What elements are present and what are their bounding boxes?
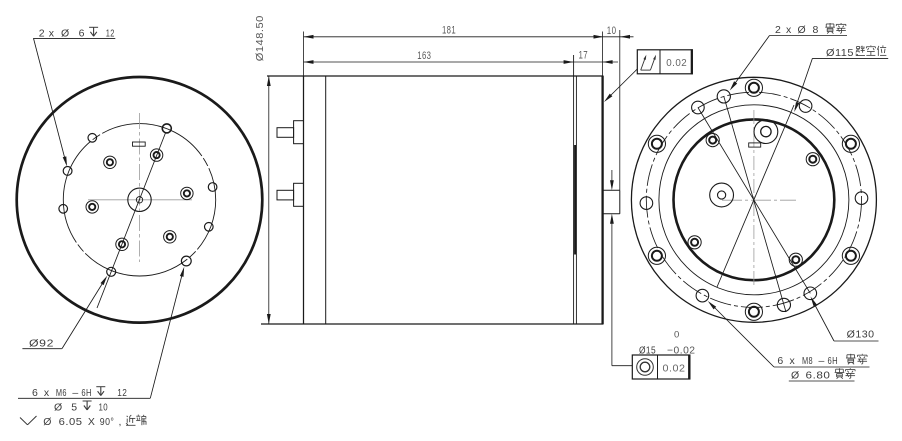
svg-text:M8: M8	[802, 355, 813, 367]
svg-text:Ø92: Ø92	[29, 338, 54, 350]
svg-text:2: 2	[775, 24, 781, 36]
svg-text:Ø115: Ø115	[826, 47, 854, 59]
svg-text:–: –	[819, 355, 825, 367]
svg-text:x: x	[786, 24, 792, 36]
svg-text:0.02: 0.02	[666, 58, 687, 69]
svg-text:17: 17	[579, 50, 589, 62]
svg-text:2: 2	[39, 28, 45, 40]
svg-text:Ø: Ø	[54, 401, 63, 413]
svg-text:x: x	[790, 355, 796, 367]
svg-text:5: 5	[71, 401, 77, 413]
svg-text:163: 163	[417, 50, 431, 62]
svg-text:6: 6	[32, 387, 38, 399]
svg-text:0.02: 0.02	[663, 364, 686, 375]
svg-text:8: 8	[813, 24, 819, 36]
svg-text:6.80: 6.80	[806, 369, 831, 381]
svg-text:10: 10	[99, 401, 109, 413]
svg-text:Ø: Ø	[61, 28, 70, 40]
svg-text:Ø148.50: Ø148.50	[254, 15, 266, 61]
svg-text:10: 10	[607, 25, 617, 37]
svg-text:Ø130: Ø130	[847, 329, 875, 341]
svg-text:,: ,	[119, 416, 122, 428]
svg-text:–: –	[72, 387, 78, 399]
svg-text:6: 6	[777, 355, 783, 367]
svg-text:Ø: Ø	[791, 369, 800, 381]
svg-text:M6: M6	[56, 387, 67, 399]
svg-text:12: 12	[117, 387, 127, 399]
svg-text:90°: 90°	[100, 416, 115, 428]
svg-text:X: X	[88, 416, 96, 428]
svg-text:0: 0	[674, 330, 680, 341]
svg-text:6.05: 6.05	[59, 416, 83, 428]
svg-text:Ø: Ø	[798, 24, 807, 36]
svg-text:6H: 6H	[828, 355, 839, 367]
svg-text:x: x	[49, 28, 55, 40]
svg-text:x: x	[44, 387, 50, 399]
svg-text:6H: 6H	[81, 387, 92, 399]
svg-text:12: 12	[106, 28, 115, 40]
svg-text:6: 6	[79, 28, 85, 40]
svg-text:181: 181	[442, 25, 456, 37]
svg-text:Ø: Ø	[43, 416, 52, 428]
